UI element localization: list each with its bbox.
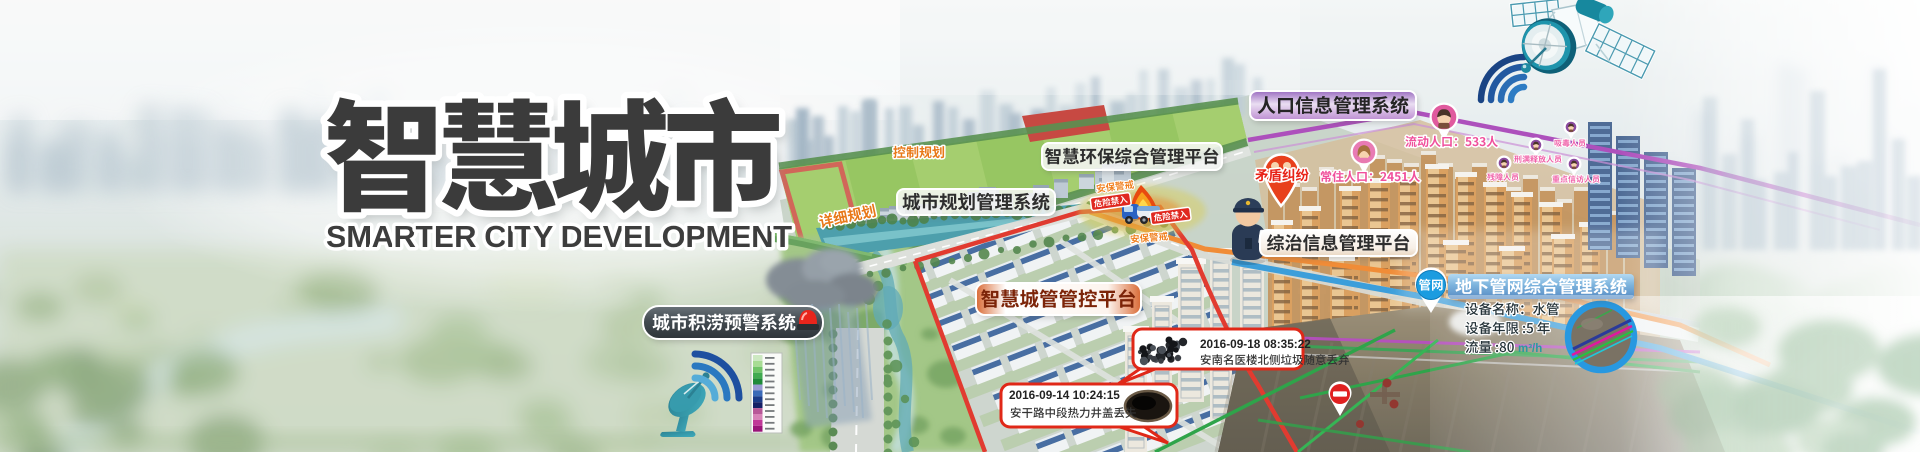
svg-text:m³/h: m³/h (1518, 343, 1542, 355)
svg-text:2016-09-18 08:35:22: 2016-09-18 08:35:22 (1200, 337, 1311, 351)
svg-text:SMARTER CITY DEVELOPMENT: SMARTER CITY DEVELOPMENT (326, 219, 792, 254)
svg-text:2016-09-14 10:24:15: 2016-09-14 10:24:15 (1009, 388, 1120, 402)
